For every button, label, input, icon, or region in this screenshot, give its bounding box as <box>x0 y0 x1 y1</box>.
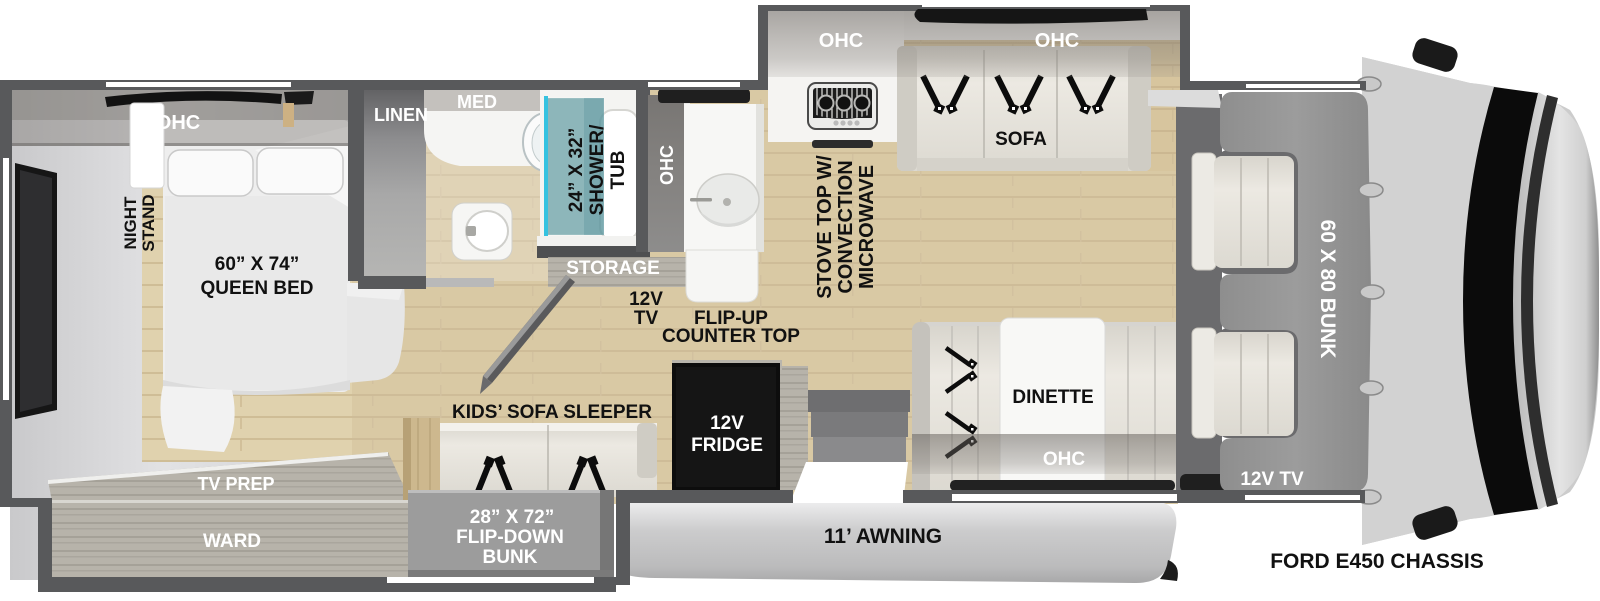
svg-text:STOVE TOP W/: STOVE TOP W/ <box>814 155 836 299</box>
svg-text:QUEEN BED: QUEEN BED <box>201 278 314 299</box>
svg-text:TUB: TUB <box>608 150 629 189</box>
svg-text:12V: 12V <box>710 413 744 434</box>
svg-text:TV PREP: TV PREP <box>197 474 274 494</box>
svg-text:28” X 72”: 28” X 72” <box>470 507 555 528</box>
svg-text:OHC: OHC <box>819 30 863 52</box>
svg-text:LINEN: LINEN <box>374 105 428 125</box>
svg-text:24” X 32”: 24” X 32” <box>566 128 587 213</box>
svg-text:NIGHT: NIGHT <box>121 196 140 250</box>
svg-text:FORD E450 CHASSIS: FORD E450 CHASSIS <box>1270 550 1484 573</box>
svg-text:OHC: OHC <box>1043 449 1086 470</box>
svg-text:60 X 80 BUNK: 60 X 80 BUNK <box>1316 220 1339 359</box>
svg-text:60” X 74”: 60” X 74” <box>215 254 300 275</box>
svg-text:FRIDGE: FRIDGE <box>691 435 763 456</box>
svg-text:12V: 12V <box>629 289 663 310</box>
svg-text:KIDS’ SOFA SLEEPER: KIDS’ SOFA SLEEPER <box>452 402 652 423</box>
svg-text:TV: TV <box>634 308 659 329</box>
svg-text:COUNTER TOP: COUNTER TOP <box>662 326 800 347</box>
svg-text:BUNK: BUNK <box>483 547 538 568</box>
svg-text:SOFA: SOFA <box>995 129 1047 150</box>
svg-text:OHC: OHC <box>156 112 200 134</box>
svg-text:FLIP-DOWN: FLIP-DOWN <box>456 527 564 548</box>
svg-text:SHOWER/: SHOWER/ <box>587 124 608 216</box>
svg-text:12V TV: 12V TV <box>1240 469 1304 490</box>
svg-text:CONVECTION: CONVECTION <box>835 160 857 293</box>
svg-text:STORAGE: STORAGE <box>566 258 660 279</box>
svg-text:STAND: STAND <box>139 194 158 251</box>
svg-text:WARD: WARD <box>203 531 261 552</box>
svg-text:MICROWAVE: MICROWAVE <box>856 165 878 289</box>
svg-text:11’ AWNING: 11’ AWNING <box>824 525 942 548</box>
svg-text:OHC: OHC <box>1035 30 1079 52</box>
svg-text:OHC: OHC <box>657 145 677 185</box>
svg-text:DINETTE: DINETTE <box>1012 387 1093 408</box>
svg-text:MED: MED <box>457 92 497 112</box>
